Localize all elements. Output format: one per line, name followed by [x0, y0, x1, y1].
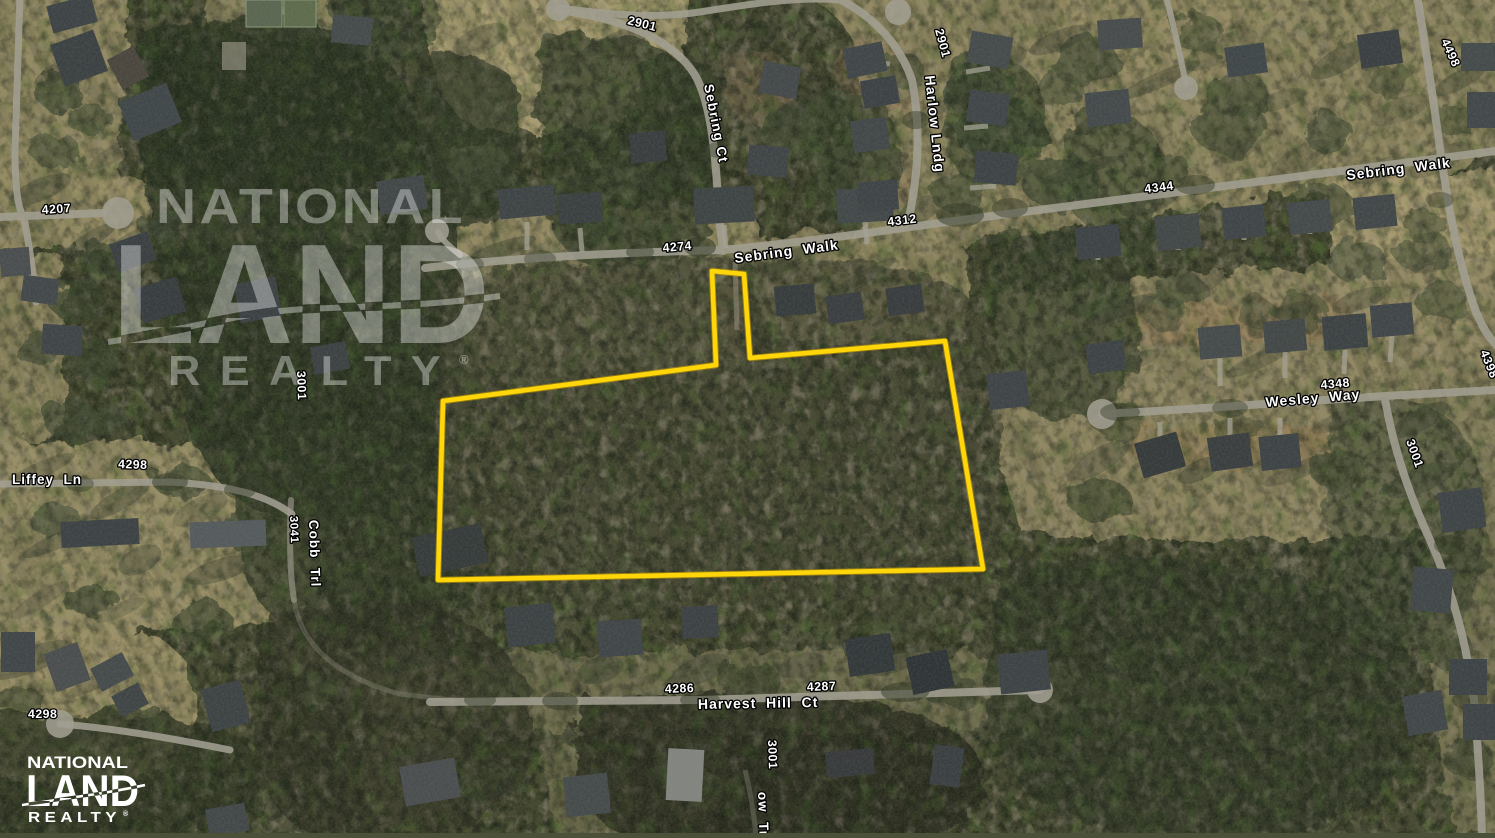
- svg-text:4298: 4298: [118, 457, 148, 472]
- svg-text:4287: 4287: [807, 679, 837, 694]
- svg-text:REALTY: REALTY: [168, 347, 460, 394]
- svg-text:4286: 4286: [665, 681, 695, 696]
- svg-text:3001: 3001: [765, 740, 780, 770]
- svg-text:ow Trl: ow Trl: [755, 792, 772, 833]
- svg-text:Liffey Ln: Liffey Ln: [12, 472, 82, 487]
- svg-text:4298: 4298: [28, 707, 57, 721]
- svg-text:Cobb Trl: Cobb Trl: [306, 520, 323, 588]
- svg-text:4274: 4274: [662, 238, 692, 255]
- svg-text:3041: 3041: [287, 516, 300, 544]
- svg-text:4348: 4348: [1320, 375, 1350, 392]
- svg-text:Harvest Hill Ct: Harvest Hill Ct: [698, 694, 819, 712]
- svg-text:®: ®: [123, 810, 129, 818]
- svg-text:4207: 4207: [41, 201, 71, 217]
- svg-text:REALTY: REALTY: [28, 809, 121, 826]
- svg-text:®: ®: [459, 352, 469, 367]
